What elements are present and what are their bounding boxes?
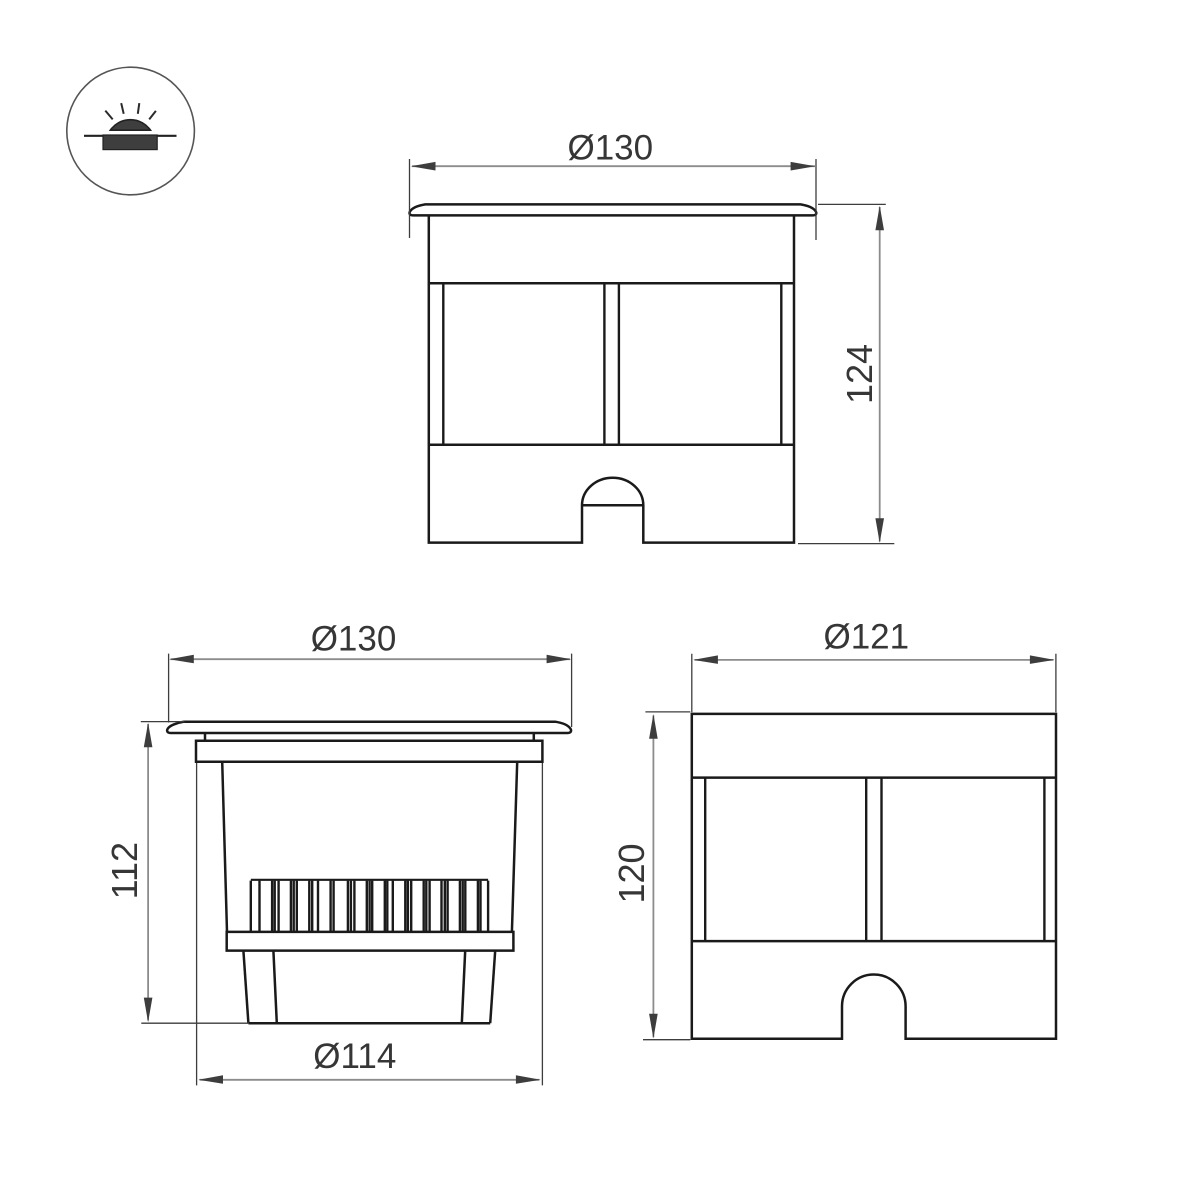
svg-text:112: 112 [104, 842, 145, 899]
svg-text:Ø130: Ø130 [311, 620, 397, 659]
svg-text:120: 120 [611, 843, 652, 903]
svg-text:Ø130: Ø130 [567, 129, 653, 168]
svg-text:Ø114: Ø114 [313, 1037, 396, 1076]
svg-text:Ø121: Ø121 [823, 618, 909, 657]
svg-text:124: 124 [839, 344, 880, 404]
